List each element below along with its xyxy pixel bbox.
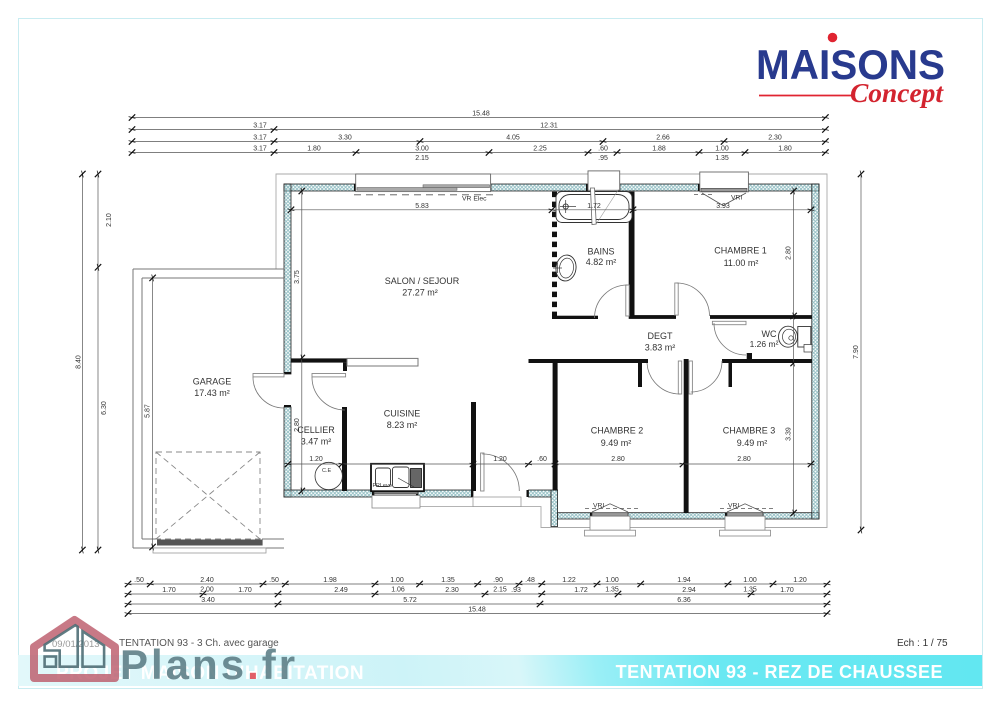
svg-text:1.06: 1.06 [391,587,405,594]
svg-text:2.10: 2.10 [106,213,113,227]
svg-text:5.87: 5.87 [145,404,152,418]
svg-text:2.94: 2.94 [682,587,696,594]
svg-text:Plans.fr: Plans.fr [120,641,298,688]
svg-text:3.93: 3.93 [716,203,730,210]
svg-text:3.17: 3.17 [253,135,267,142]
svg-text:CHAMBRE 1: CHAMBRE 1 [714,246,767,256]
svg-text:CHAMBRE 3: CHAMBRE 3 [723,426,776,436]
svg-text:1.35: 1.35 [605,587,619,594]
svg-text:3.17: 3.17 [253,123,267,130]
svg-text:1.35: 1.35 [715,155,729,162]
svg-text:1.70: 1.70 [238,587,252,594]
svg-text:7.90: 7.90 [853,345,860,359]
svg-text:4.82 m²: 4.82 m² [586,257,617,267]
svg-text:8.23 m²: 8.23 m² [387,420,418,430]
svg-text:2.30: 2.30 [445,587,459,594]
svg-text:5.83: 5.83 [415,203,429,210]
svg-text:3.47 m²: 3.47 m² [301,437,332,447]
svg-text:.48: .48 [525,577,535,584]
svg-text:9.49 m²: 9.49 m² [737,438,768,448]
svg-text:CELLIER: CELLIER [297,425,335,435]
svg-text:3.83 m²: 3.83 m² [645,343,676,353]
svg-text:3.75: 3.75 [294,270,301,284]
svg-text:CHAMBRE 2: CHAMBRE 2 [591,426,644,436]
svg-text:2.00: 2.00 [200,587,214,594]
svg-text:15.48: 15.48 [472,111,490,118]
svg-text:1.00: 1.00 [743,577,757,584]
svg-text:.95: .95 [598,155,608,162]
svg-text:.60: .60 [537,456,547,463]
svg-text:6.30: 6.30 [101,401,108,415]
svg-text:.50: .50 [134,577,144,584]
svg-text:12.31: 12.31 [540,123,558,130]
svg-text:1.72: 1.72 [587,203,601,210]
svg-text:1.00: 1.00 [390,577,404,584]
svg-text:.93: .93 [511,587,521,594]
svg-text:1.72: 1.72 [574,587,588,594]
svg-text:2.66: 2.66 [656,135,670,142]
svg-text:1.26 m²: 1.26 m² [750,339,779,349]
svg-text:.60: .60 [598,146,608,153]
svg-text:VRI: VRI [728,503,739,510]
svg-text:1.00: 1.00 [715,146,729,153]
svg-text:1.35: 1.35 [441,577,455,584]
svg-text:4.05: 4.05 [506,135,520,142]
svg-text:2.25: 2.25 [533,146,547,153]
svg-text:1.20: 1.20 [793,577,807,584]
svg-text:2.80: 2.80 [786,246,793,260]
svg-text:1.35: 1.35 [743,587,757,594]
svg-text:17.43 m²: 17.43 m² [194,388,230,398]
svg-text:VRI: VRI [593,503,604,510]
svg-text:VRI: VRI [731,195,742,202]
svg-text:1.98: 1.98 [323,577,337,584]
svg-text:2.15: 2.15 [493,587,507,594]
svg-text:C.E: C.E [322,468,332,474]
svg-text:1.20: 1.20 [309,456,323,463]
svg-text:1.70: 1.70 [162,587,176,594]
svg-text:2.49: 2.49 [334,587,348,594]
svg-text:WC: WC [762,329,777,339]
svg-text:1.94: 1.94 [677,577,691,584]
svg-text:SALON / SEJOUR: SALON / SEJOUR [385,276,460,286]
svg-text:GARAGE: GARAGE [193,377,232,387]
svg-text:FRI evo: FRI evo [373,483,392,489]
svg-text:BAINS: BAINS [587,247,614,257]
svg-text:2.80: 2.80 [294,418,301,432]
svg-text:VR Elec: VR Elec [462,196,487,203]
svg-text:3.17: 3.17 [253,146,267,153]
svg-text:1.22: 1.22 [562,577,576,584]
svg-text:2.15: 2.15 [415,155,429,162]
svg-text:CUISINE: CUISINE [384,409,421,419]
svg-text:1.00: 1.00 [605,577,619,584]
svg-text:.90: .90 [493,577,503,584]
svg-text:3.00: 3.00 [415,146,429,153]
svg-text:2.30: 2.30 [768,135,782,142]
svg-text:5.72: 5.72 [403,597,417,604]
svg-text:2.80: 2.80 [737,456,751,463]
svg-text:.50: .50 [269,577,279,584]
svg-text:DEGT: DEGT [647,331,673,341]
svg-text:8.40: 8.40 [75,355,82,369]
svg-text:11.00 m²: 11.00 m² [724,258,759,268]
svg-text:1.80: 1.80 [307,146,321,153]
svg-text:1.70: 1.70 [780,587,794,594]
svg-text:27.27 m²: 27.27 m² [402,288,438,298]
svg-text:1.20: 1.20 [493,456,507,463]
svg-text:Concept: Concept [850,78,945,108]
svg-text:1.80: 1.80 [778,146,792,153]
svg-text:2.40: 2.40 [200,577,214,584]
svg-text:3.30: 3.30 [338,135,352,142]
svg-text:2.80: 2.80 [611,456,625,463]
svg-text:3.39: 3.39 [786,427,793,441]
svg-text:1.88: 1.88 [652,146,666,153]
svg-text:15.48: 15.48 [468,607,486,614]
svg-text:6.36: 6.36 [677,597,691,604]
svg-text:9.49 m²: 9.49 m² [601,438,632,448]
